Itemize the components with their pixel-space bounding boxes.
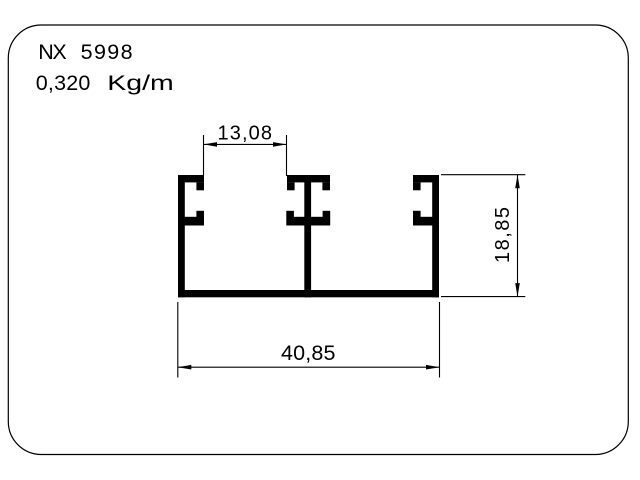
svg-text:18,85: 18,85 [492, 207, 514, 263]
svg-text:0,320: 0,320 [36, 71, 91, 95]
svg-text:13,08: 13,08 [218, 122, 273, 144]
svg-text:NX: NX [38, 40, 66, 64]
svg-text:5998: 5998 [81, 40, 133, 64]
svg-text:Kg/m: Kg/m [107, 71, 174, 95]
svg-text:40,85: 40,85 [281, 341, 336, 365]
